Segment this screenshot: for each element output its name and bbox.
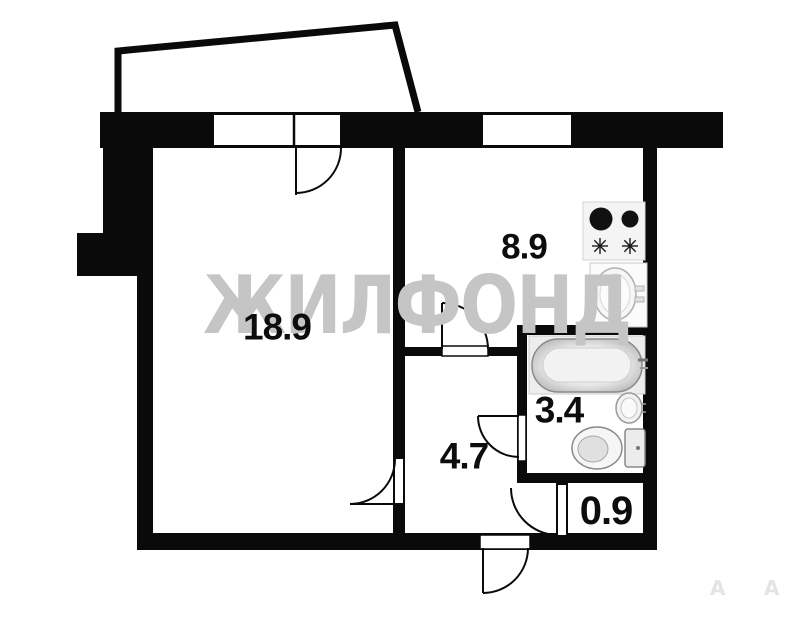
wall-left-upper [103,112,153,276]
room-label-living-room: 18.9 [243,309,311,346]
corner-watermark-letter: А [764,576,779,600]
balcony-door-arc [296,148,341,193]
toilet-tank [625,429,645,467]
wall-left-lower [137,270,153,550]
floor-plan: ЖИЛФОНД 18.9 8.9 3.4 4.7 0.9 А А [0,0,804,619]
room-label-kitchen: 8.9 [501,230,547,265]
wall-top [100,112,723,148]
entry-door-arc [483,548,528,593]
vestibule-door-arc [511,488,557,535]
room-label-bathroom: 3.4 [535,392,583,429]
wall-bathroom-bottom [517,473,657,483]
room-label-hallway: 4.7 [440,438,488,475]
balcony-outline [118,25,418,112]
wall-left-protrusion [77,233,105,276]
corner-watermark-letter: А [710,576,725,600]
stove-burner-small [622,211,639,228]
kitchen-faucet [635,286,644,291]
living-room-door-arc [350,459,395,504]
entry-door-opening [480,535,530,549]
vestibule-door-leaf [557,484,567,536]
kitchen-window [482,114,572,146]
bathroom-door-opening [518,415,526,461]
toilet [572,427,645,469]
bathroom-sink [616,393,646,423]
wall-bottom [137,533,657,550]
living-room-window [213,114,341,146]
stove [583,202,645,260]
room-label-vestibule: 0.9 [580,491,633,531]
stove-burner-large [590,208,613,231]
